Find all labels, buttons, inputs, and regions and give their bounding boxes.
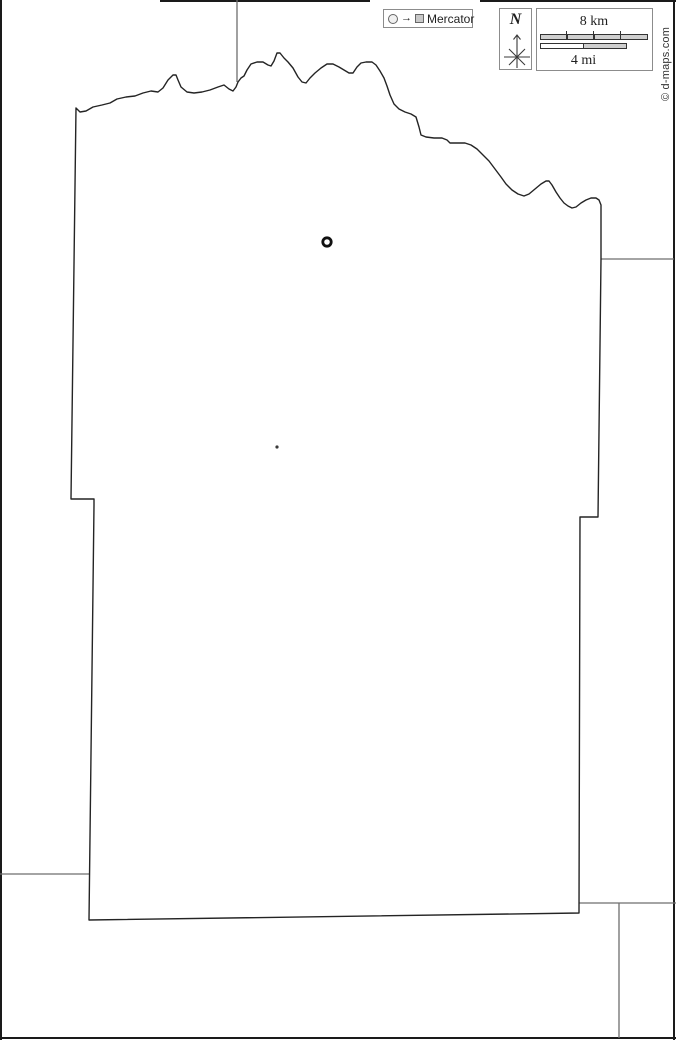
km-tick — [620, 31, 621, 40]
projection-note-label: Mercator — [427, 13, 474, 25]
scale-mi-label: 4 mi — [540, 54, 627, 68]
compass-star-icon — [500, 9, 533, 71]
city-circle-icon — [388, 14, 398, 24]
km-tick — [566, 31, 567, 40]
scale-mi-bar — [540, 43, 627, 49]
credit-text: © d-maps.com — [660, 27, 672, 101]
km-segment — [567, 35, 594, 39]
county-outline — [71, 53, 601, 920]
town-ring-marker — [323, 238, 331, 246]
credit-watermark: © d-maps.com — [660, 97, 676, 115]
locality-dot-marker — [275, 445, 278, 448]
scale-km-bar — [540, 31, 648, 40]
scale-km-label: 8 km — [540, 15, 648, 29]
map-canvas: → Mercator N 8 km — [0, 0, 676, 1040]
arrow-right-icon: → — [401, 13, 412, 24]
km-segment — [594, 35, 621, 39]
compass-box: N — [499, 8, 532, 70]
km-segment — [541, 35, 567, 39]
projection-note: → Mercator — [383, 9, 473, 28]
km-tick — [593, 31, 594, 40]
mi-segment — [583, 44, 626, 48]
km-segment — [620, 35, 647, 39]
county-map-svg — [0, 0, 676, 1040]
city-square-icon — [415, 14, 424, 23]
scale-bar-box: 8 km 4 mi — [536, 8, 653, 71]
mi-segment — [541, 44, 583, 48]
scale-km-bar-segments — [540, 34, 648, 40]
